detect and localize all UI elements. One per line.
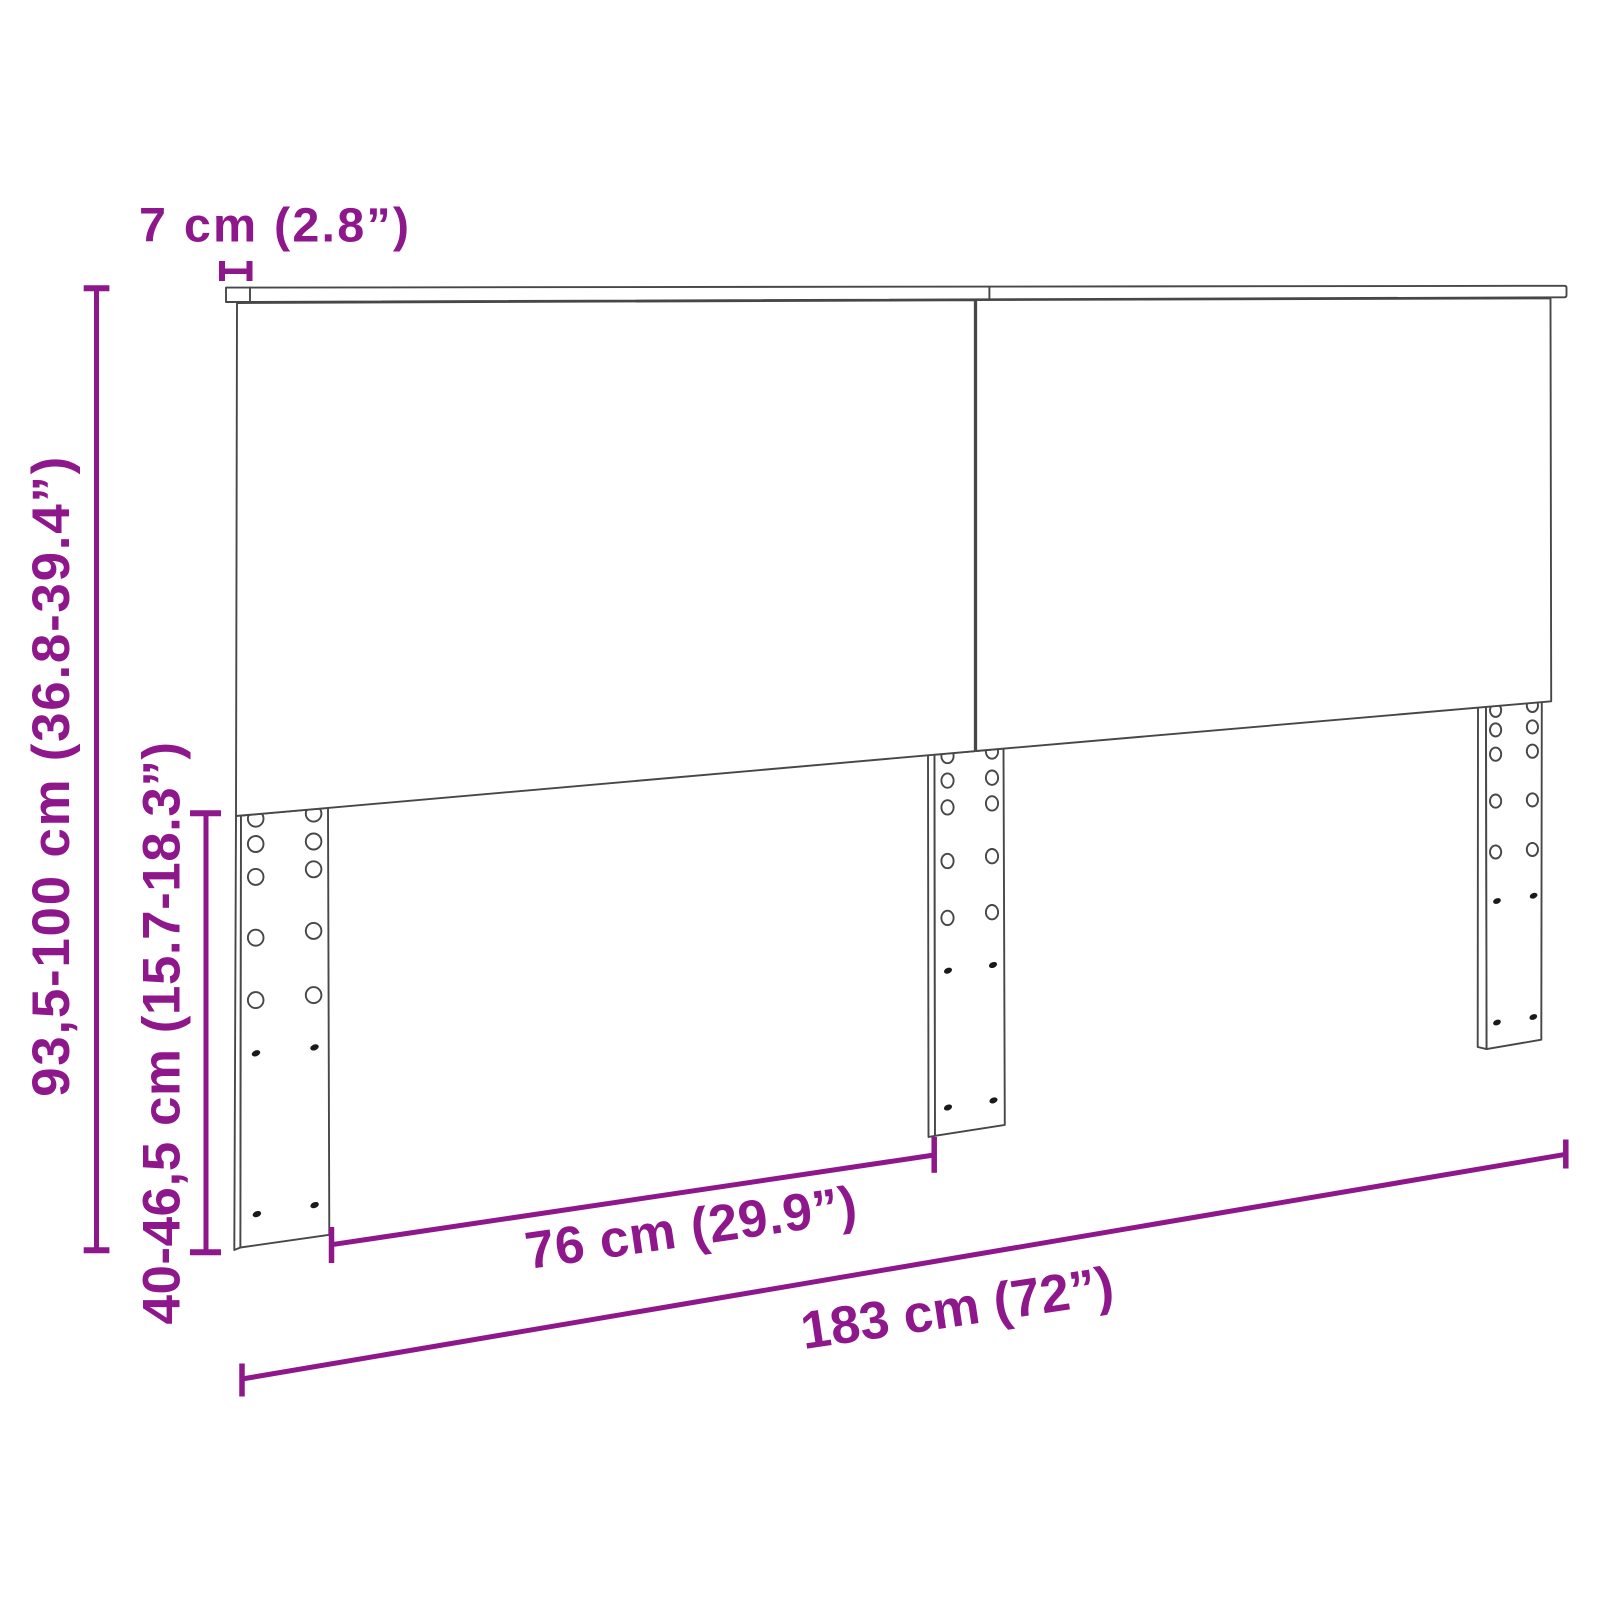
svg-text:93,5-100 cm (36.8-39.4”): 93,5-100 cm (36.8-39.4”) bbox=[22, 455, 81, 1097]
svg-text:40-46,5 cm (15.7-18.3”): 40-46,5 cm (15.7-18.3”) bbox=[133, 741, 192, 1324]
svg-text:7 cm (2.8”): 7 cm (2.8”) bbox=[139, 199, 411, 253]
